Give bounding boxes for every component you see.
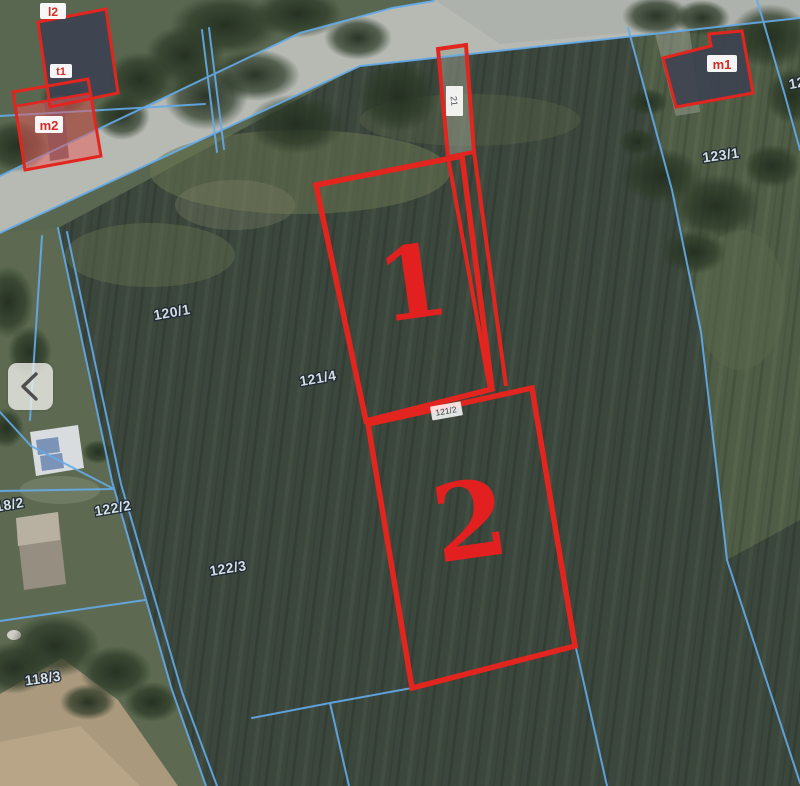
chevron-left-icon: [11, 363, 51, 410]
satellite-map-photo[interactable]: 1 2 l2 t1 m2 m1 21 121/2 120/1 121/4 118…: [0, 0, 800, 786]
farm-house: [16, 512, 66, 590]
building-roof-l2: [38, 9, 118, 107]
building-tag-m1: m1: [713, 57, 732, 72]
gallery-prev-button[interactable]: [8, 363, 53, 410]
sliver-tag-21: 21: [449, 95, 460, 106]
building-tag-m2: m2: [40, 118, 59, 133]
map-canvas: 1 2 l2 t1 m2 m1 21 121/2 120/1 121/4 118…: [0, 0, 800, 786]
building-tag-l2: l2: [48, 5, 58, 19]
building-tag-t1: t1: [56, 66, 66, 78]
cadastral-number: 123: [787, 72, 800, 92]
